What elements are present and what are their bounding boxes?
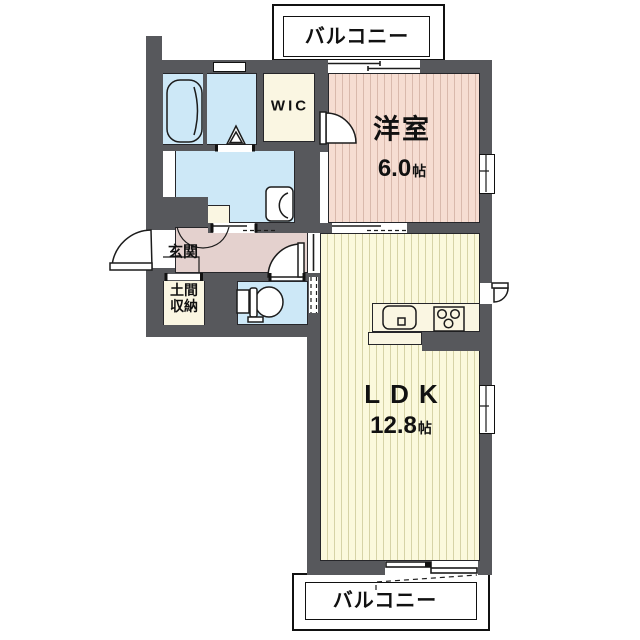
- wall-segment: [163, 197, 208, 227]
- ldk-label: LDK: [364, 381, 447, 407]
- toilet-floor: [237, 281, 308, 325]
- bath-door-opening: [218, 145, 252, 152]
- wall-segment: [422, 332, 492, 351]
- kitchen-backdoor-leaf: [492, 283, 508, 288]
- balcony-top-label: バルコニー: [305, 27, 410, 47]
- doma-storage-label: 土間 収納: [170, 282, 198, 314]
- wall-segment: [308, 273, 320, 325]
- kitchen-counter: [372, 303, 480, 332]
- doma-storage-line2: 収納: [170, 298, 198, 314]
- western-room-size: 6.0帖: [378, 157, 426, 181]
- wall-segment: [146, 60, 163, 337]
- kitchen-counter-return: [368, 332, 422, 345]
- bath-partition: [203, 73, 207, 145]
- floorplan: バルコニー WIC 洋室 6.0帖 玄関 土間 収納 LDK 12.8帖 バルコ…: [0, 0, 640, 640]
- wall-segment: [146, 36, 162, 62]
- wall-segment: [263, 142, 315, 151]
- wall-segment: [257, 73, 263, 145]
- balcony-bottom-label: バルコニー: [333, 591, 438, 611]
- wall-segment: [295, 145, 320, 233]
- western-room-floor: [328, 73, 480, 223]
- ldk-size-unit: 帖: [418, 421, 432, 435]
- wic-label: WIC: [271, 99, 309, 114]
- washroom-slider-opening: [213, 223, 255, 233]
- doma-storage-line1: 土間: [170, 282, 198, 298]
- wall-segment: [480, 60, 492, 575]
- wall-segment: [307, 325, 320, 575]
- western-ldk-slider-opening: [332, 223, 407, 233]
- western-room-window: [479, 154, 495, 194]
- kitchen-backdoor-arc: [494, 288, 508, 302]
- western-room-size-unit: 帖: [412, 164, 426, 178]
- ldk-size: 12.8帖: [370, 414, 432, 438]
- wall-segment: [205, 273, 237, 327]
- balcony-window-opening: [328, 60, 420, 73]
- ldk-size-value: 12.8: [370, 414, 417, 438]
- doma-door-opening: [167, 274, 200, 280]
- entrance-label: 玄関: [168, 245, 198, 260]
- western-room-label: 洋室: [373, 117, 431, 144]
- bathroom-floor: [162, 73, 257, 145]
- western-room-size-value: 6.0: [378, 157, 411, 181]
- wall-segment: [308, 223, 320, 233]
- wall-segment: [315, 73, 328, 152]
- ldk-balcony-window-opening: [385, 561, 478, 575]
- kitchen-backdoor-opening: [480, 283, 492, 304]
- bath-window: [213, 62, 246, 72]
- toilet-door-opening: [271, 274, 303, 280]
- ldk-window: [479, 385, 495, 434]
- hallway-ldk-opening: [308, 233, 320, 273]
